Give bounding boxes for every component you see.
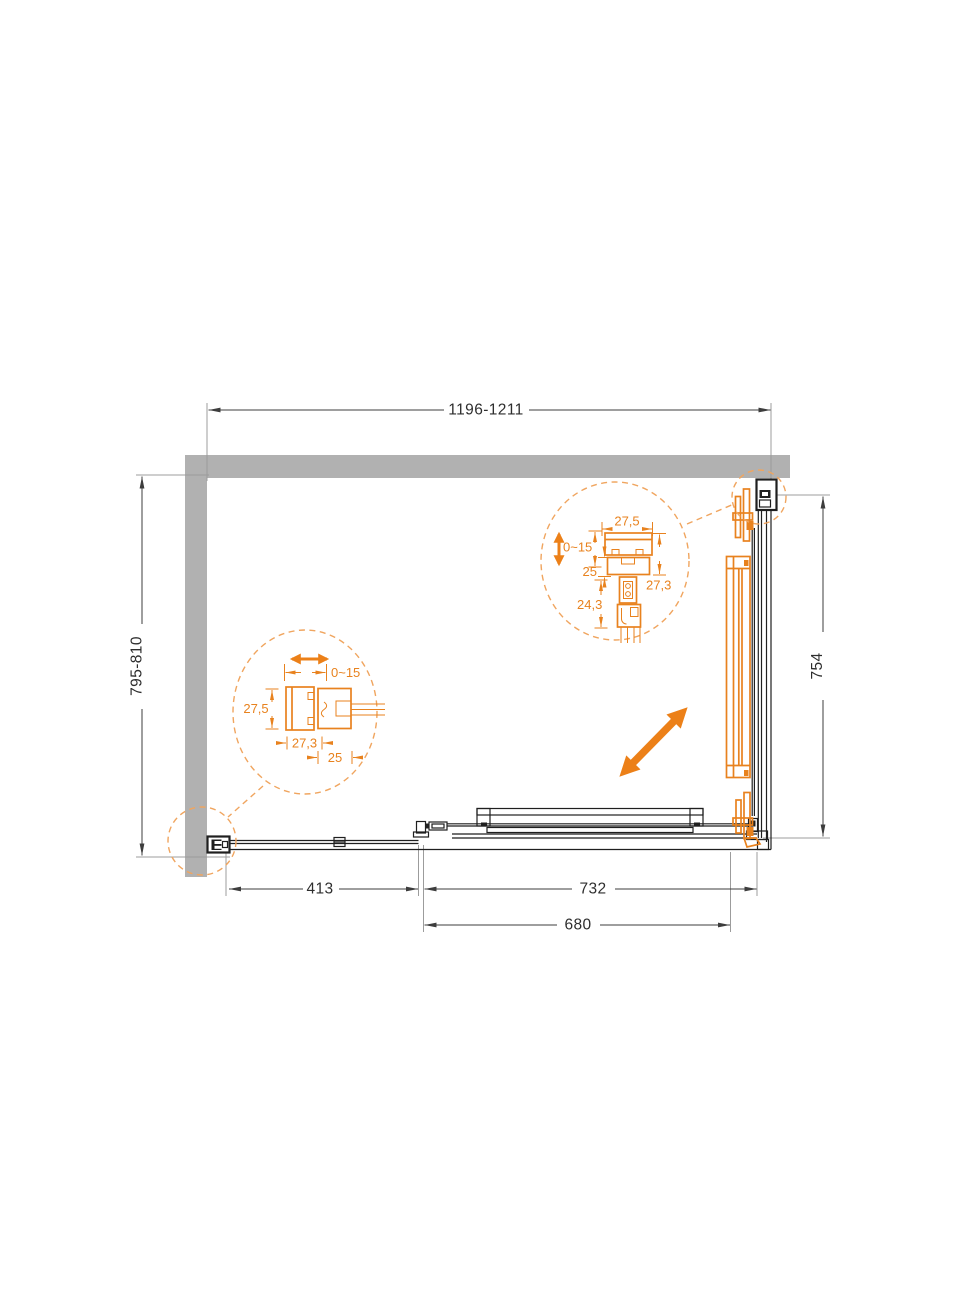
dim-depth-left-label: 795-810: [129, 636, 146, 696]
detail-left-glass-insert-label: 25: [328, 750, 342, 765]
detail-right-glass-insert-label: 25: [583, 564, 597, 579]
dim-fixed-panel-label: 413: [306, 881, 333, 898]
dimension-door-front-bottom: 732: [425, 881, 757, 898]
callout-leader-right: [687, 504, 734, 524]
detail-right-adjustment-label: 0~15: [563, 540, 592, 555]
wall-profile-bottom-left: [208, 837, 230, 853]
sliding-door-bottom: [477, 809, 703, 833]
dimension-width-top: 1196-1211: [209, 402, 771, 419]
door-glass: [487, 828, 693, 833]
dimension-door-right: 754: [809, 497, 826, 837]
dim-width-top-label: 1196-1211: [448, 402, 523, 419]
detail-left-section: 0~15 27,5 27,3 25: [243, 659, 385, 765]
dimension-opening-bottom: 680: [425, 917, 731, 934]
wall-top: [185, 455, 790, 478]
detail-left-profile-width-label: 27,3: [292, 736, 317, 751]
dimension-depth-left: 795-810: [129, 477, 146, 856]
detail-left-adjustment-label: 0~15: [331, 665, 360, 680]
door-roller-right: [694, 823, 700, 827]
wall-left: [185, 455, 207, 877]
detail-top-right-section: 27,5 0~15 25 24,3 27,3: [559, 514, 671, 644]
shower-enclosure-plan-drawing: 1196-1211 795-810 754 413 732 680: [0, 0, 975, 1300]
detail-right-profile-depth-label: 27,3: [646, 578, 671, 593]
dimension-fixed-panel-bottom: 413: [229, 881, 418, 898]
detail-right-profile-width-label: 27,5: [614, 514, 639, 529]
door-hanger-bottom: [733, 793, 760, 848]
dim-opening-label: 680: [564, 917, 591, 934]
panel-bracket-middle: [414, 822, 448, 838]
sliding-door-right: [727, 557, 751, 778]
dim-door-front-label: 732: [579, 881, 606, 898]
detail-right-hanger-offset-label: 24,3: [577, 597, 602, 612]
fixed-panel-right: [752, 510, 766, 842]
slide-direction-arrow-icon: [625, 713, 682, 771]
track-rail-bottom: [447, 824, 757, 838]
detail-left-profile-depth-label: 27,5: [243, 701, 268, 716]
technical-drawing-page: 1196-1211 795-810 754 413 732 680: [0, 0, 975, 1300]
door-hanger-top: [733, 489, 754, 541]
callout-leader-left: [228, 786, 263, 817]
detail-bubble-top-right: [541, 482, 689, 640]
dim-door-right-label: 754: [809, 652, 826, 679]
wall-profile-top-right: [757, 480, 777, 511]
door-roller-left: [481, 823, 487, 827]
fixed-panel-bottom: [230, 838, 771, 850]
